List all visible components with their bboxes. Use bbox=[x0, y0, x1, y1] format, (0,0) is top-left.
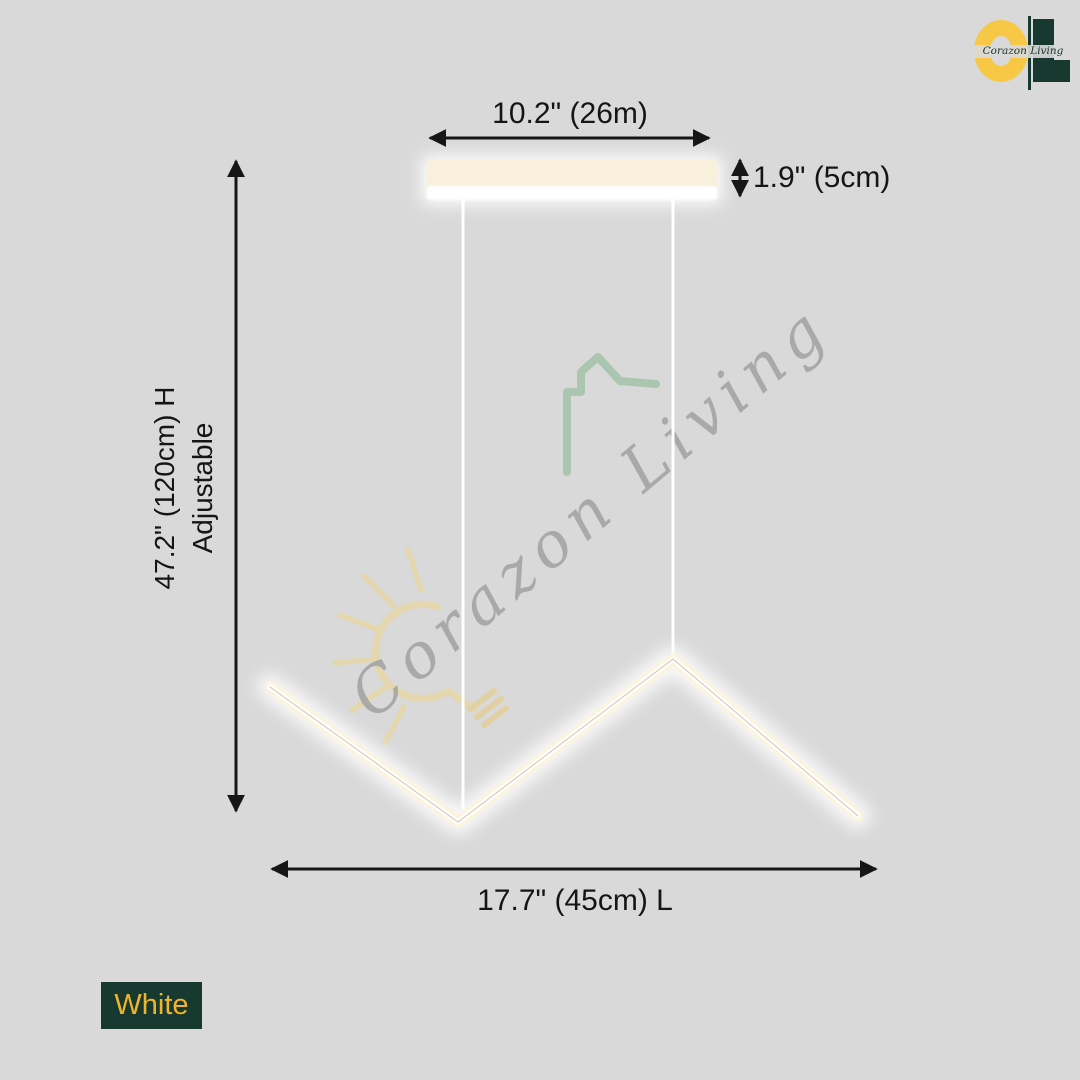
variant-label: White bbox=[114, 989, 188, 1022]
logo-script-text: Corazon Living bbox=[968, 45, 1078, 58]
logo-l-foot bbox=[1033, 60, 1070, 82]
zigzag-light-bar bbox=[270, 659, 858, 822]
top-width-label: 10.2" (26m) bbox=[420, 97, 720, 131]
variant-chip: White bbox=[101, 982, 202, 1029]
length-label: 17.7" (45cm) L bbox=[425, 884, 725, 918]
canopy-height-label: 1.9" (5cm) bbox=[753, 161, 890, 195]
height-label: 47.2" (120cm) H Adjustable bbox=[146, 138, 226, 838]
height-label-line1: 47.2" (120cm) H bbox=[146, 138, 184, 838]
ceiling-canopy bbox=[421, 155, 723, 205]
height-label-line2: Adjustable bbox=[184, 138, 222, 838]
suspension-cables bbox=[463, 200, 673, 808]
brand-logo: Corazon Living bbox=[972, 16, 1076, 92]
